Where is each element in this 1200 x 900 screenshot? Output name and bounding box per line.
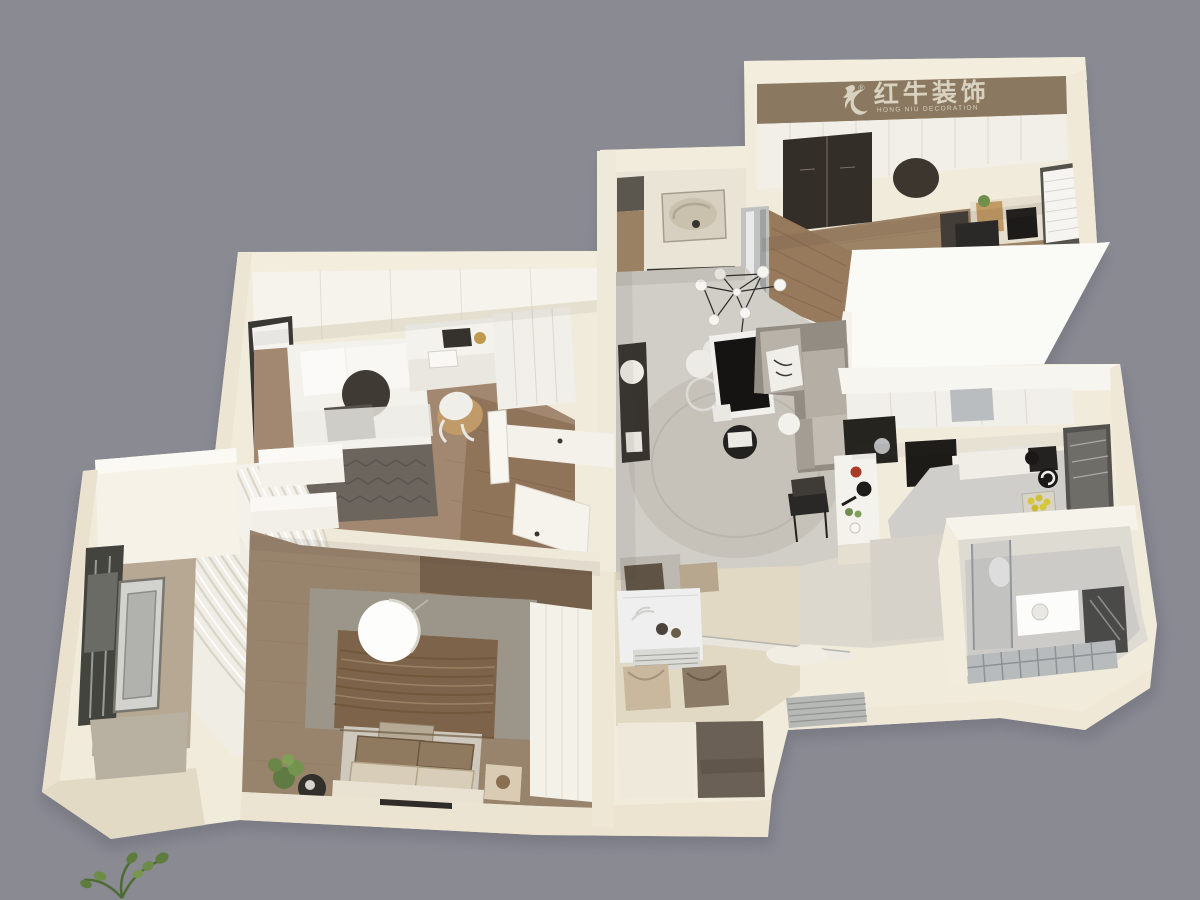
- svg-text:®: ®: [858, 83, 865, 93]
